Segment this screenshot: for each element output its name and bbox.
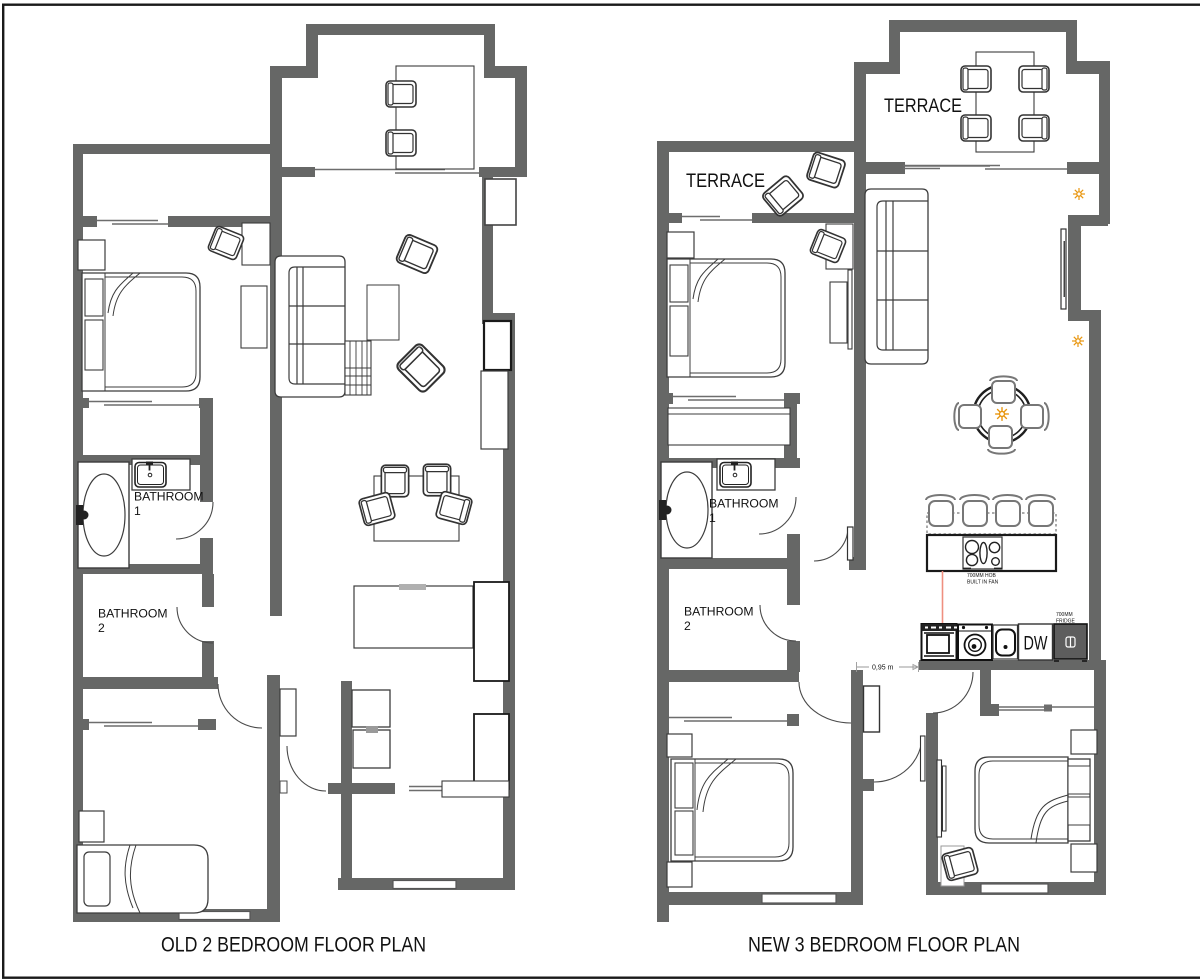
svg-text:BATHROOM: BATHROOM <box>98 607 168 621</box>
svg-text:700MM: 700MM <box>1056 612 1073 618</box>
svg-text:1: 1 <box>709 511 716 525</box>
svg-text:BUILT IN FAN: BUILT IN FAN <box>967 580 999 586</box>
svg-text:DW: DW <box>1024 634 1048 655</box>
svg-text:BATHROOM: BATHROOM <box>709 497 779 511</box>
svg-text:2: 2 <box>98 621 105 635</box>
svg-text:BATHROOM: BATHROOM <box>684 605 754 619</box>
svg-text:FRIDGE: FRIDGE <box>1056 619 1076 625</box>
svg-text:TERRACE: TERRACE <box>884 96 962 117</box>
svg-text:TERRACE: TERRACE <box>686 171 765 192</box>
svg-text:NEW 3 BEDROOM FLOOR PLAN: NEW 3 BEDROOM FLOOR PLAN <box>748 934 1020 957</box>
svg-text:BATHROOM: BATHROOM <box>134 490 204 504</box>
svg-text:700MM HOB: 700MM HOB <box>967 573 997 579</box>
svg-text:OLD 2 BEDROOM FLOOR PLAN: OLD 2 BEDROOM FLOOR PLAN <box>161 934 426 957</box>
svg-text:1: 1 <box>134 504 141 518</box>
svg-text:2: 2 <box>684 619 691 633</box>
